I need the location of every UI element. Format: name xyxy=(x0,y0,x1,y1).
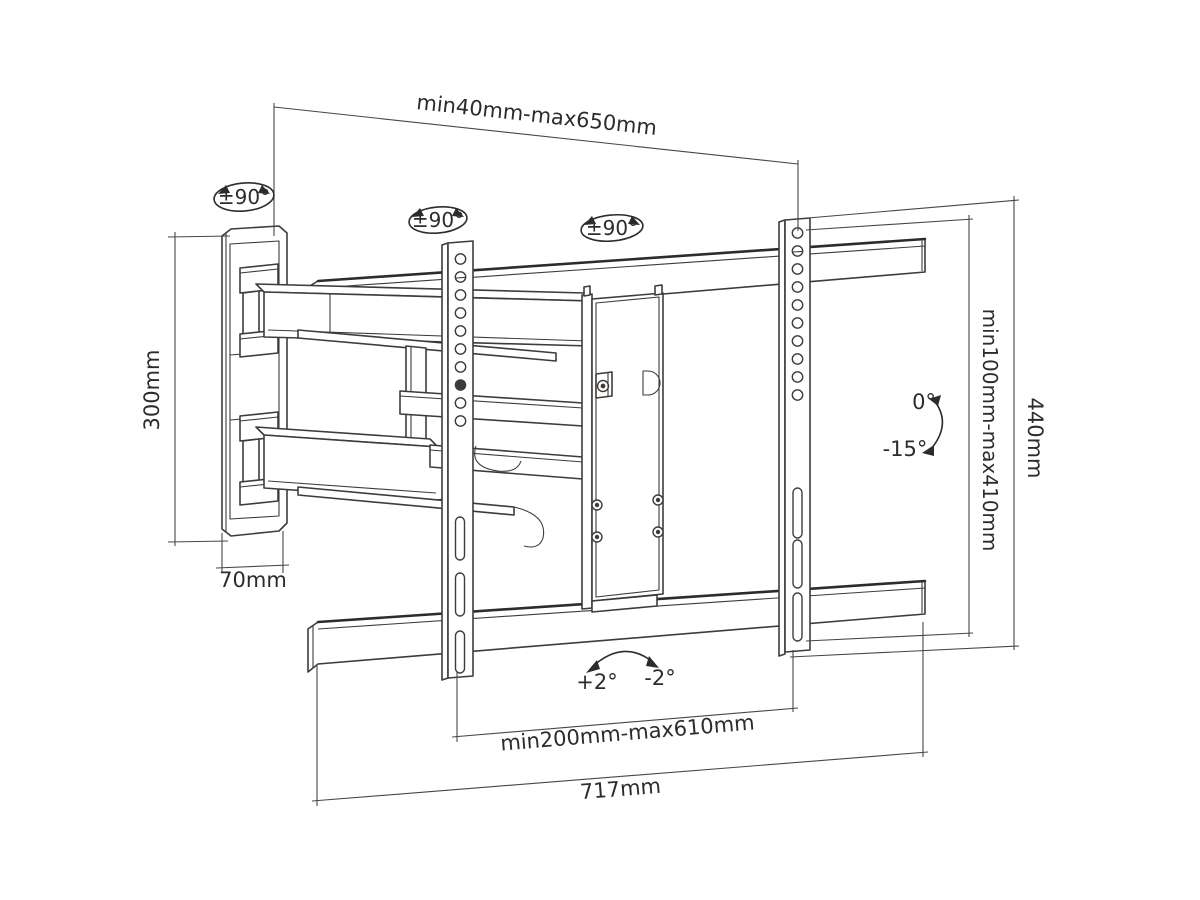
tilt-zero-label: 0° xyxy=(912,390,936,414)
left-rail-hole xyxy=(455,254,465,264)
bracket-height-label: 440mm xyxy=(1023,398,1047,479)
adapter-plate-body xyxy=(592,293,663,601)
swivel-right-label: ±90° xyxy=(586,216,638,240)
diagram-page: min40mm-max650mm 300mm 70mm min100mm-max… xyxy=(0,0,1200,900)
right-rail-hole-throughline xyxy=(793,251,802,252)
rail-span-ext-top xyxy=(806,219,973,230)
adapter-screw-4-dot xyxy=(656,530,659,533)
swivel-indicator-left: ±90° xyxy=(213,180,275,213)
plate-height-label: 300mm xyxy=(140,350,164,431)
rail-span-ext-bottom xyxy=(806,633,973,641)
plate-width-label: 70mm xyxy=(219,568,287,592)
adapter-hook-tab-right xyxy=(655,285,662,295)
swivel-arm-upper xyxy=(256,284,616,449)
rail-span-label: min100mm-max410mm xyxy=(978,309,1002,552)
left-rail-side-face xyxy=(442,243,448,680)
adapter-screw-3-dot xyxy=(595,535,598,538)
right-rail-hole xyxy=(792,354,802,364)
tilt-down-label: -15° xyxy=(883,437,928,461)
right-rail-hole xyxy=(792,336,802,346)
swivel-indicator-mid: ±90° xyxy=(408,205,468,236)
left-rail-hole xyxy=(455,416,465,426)
dimension-bottom-span: min200mm-max610mm xyxy=(452,650,798,756)
plate-height-ext-bottom xyxy=(168,541,228,542)
bottom-span-label: min200mm-max610mm xyxy=(499,710,755,755)
level-arc xyxy=(592,651,654,667)
left-rail-slot xyxy=(456,573,465,616)
level-minus-label: -2° xyxy=(644,666,675,690)
swivel-indicator-right: ±90° xyxy=(580,212,644,243)
level-plus-label: +2° xyxy=(576,670,617,694)
tilt-indicator: 0° -15° xyxy=(883,390,943,461)
adapter-strip-hook-tab xyxy=(584,286,590,296)
upper-forearm xyxy=(400,391,583,426)
top-span-label: min40mm-max650mm xyxy=(415,90,658,140)
left-rail-hole xyxy=(455,398,465,408)
adapter-screw-2-dot xyxy=(656,498,659,501)
leveling-indicator: +2° -2° xyxy=(576,651,675,694)
left-rail-slot xyxy=(456,631,465,673)
right-rail-slot xyxy=(793,593,802,641)
vesa-rail-left xyxy=(442,241,473,680)
swivel-arm-lower xyxy=(256,427,583,547)
right-rail-hole xyxy=(792,282,802,292)
left-rail-hole xyxy=(455,326,465,336)
tv-mount-technical-drawing: min40mm-max650mm 300mm 70mm min100mm-max… xyxy=(0,0,1200,900)
left-rail-hole xyxy=(455,344,465,354)
dimension-plate-width: 70mm xyxy=(216,531,289,592)
right-rail-slot xyxy=(793,540,802,588)
left-rail-hole-throughline xyxy=(456,277,465,278)
upper-hinge-pin xyxy=(243,291,259,336)
adapter-strip xyxy=(582,294,592,609)
lower-hinge-pin xyxy=(243,439,259,484)
adapter-screw-1-dot xyxy=(595,503,598,506)
left-rail-hole xyxy=(455,290,465,300)
right-rail-slot xyxy=(793,488,802,538)
right-rail-hole xyxy=(792,264,802,274)
adapter-latch-dot xyxy=(601,384,605,388)
right-rail-hole xyxy=(792,318,802,328)
lower-tie-bar-curl xyxy=(514,507,544,547)
left-rail-hole xyxy=(455,308,465,318)
dimension-top-span: min40mm-max650mm xyxy=(274,90,798,236)
dimension-plate-height: 300mm xyxy=(140,232,230,546)
vesa-rail-right xyxy=(779,218,810,656)
right-rail-hole xyxy=(792,372,802,382)
bracket-width-label: 717mm xyxy=(579,774,662,804)
right-rail-hole xyxy=(792,300,802,310)
swivel-left-label: ±90° xyxy=(218,185,270,209)
tv-adapter-plate xyxy=(582,285,663,612)
right-rail-hole xyxy=(792,390,802,400)
left-rail-hole xyxy=(455,362,465,372)
left-rail-slot xyxy=(456,517,465,560)
swivel-mid-label: ±90° xyxy=(412,208,464,232)
bracket-height-ext-top xyxy=(808,200,1019,218)
right-rail-side-face xyxy=(779,220,785,656)
plate-height-ext-top xyxy=(168,236,230,237)
left-rail-hole-filled xyxy=(455,380,465,390)
bracket-height-ext-bottom xyxy=(790,646,1019,657)
